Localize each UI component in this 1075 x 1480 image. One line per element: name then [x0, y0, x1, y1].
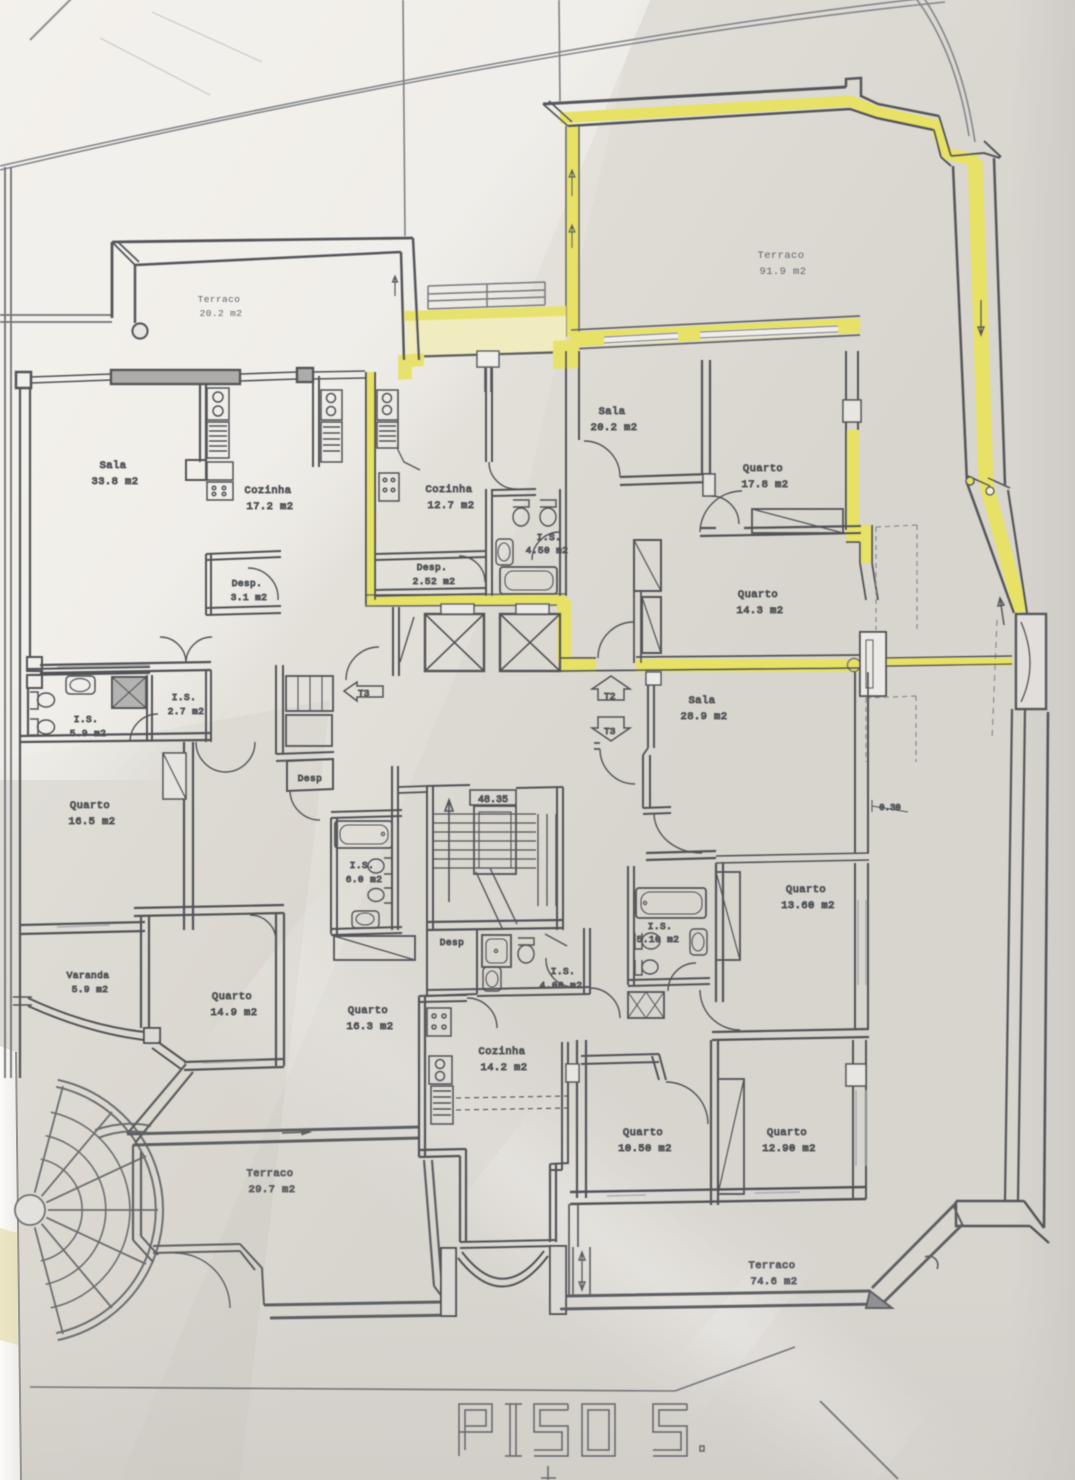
svg-text:10.50 m2: 10.50 m2: [618, 1143, 672, 1155]
svg-text:I.S.: I.S.: [648, 921, 672, 932]
svg-text:Terraco: Terraco: [198, 294, 241, 305]
svg-text:Desp.: Desp.: [417, 562, 448, 573]
svg-text:17.8 m2: 17.8 m2: [742, 479, 789, 491]
svg-text:2.52 m2: 2.52 m2: [413, 576, 456, 587]
svg-text:2.7 m2: 2.7 m2: [168, 706, 205, 717]
svg-text:T3: T3: [604, 726, 616, 737]
svg-text:74.6 m2: 74.6 m2: [751, 1276, 798, 1288]
svg-text:16.3 m2: 16.3 m2: [347, 1021, 394, 1033]
svg-text:Desp: Desp: [440, 937, 464, 948]
svg-text:Quarto: Quarto: [70, 800, 110, 812]
svg-text:Quarto: Quarto: [212, 991, 252, 1003]
svg-text:Cozinha: Cozinha: [426, 484, 473, 496]
svg-text:91.9 m2: 91.9 m2: [760, 266, 807, 278]
svg-text:Sala: Sala: [599, 406, 626, 418]
svg-text:13.60 m2: 13.60 m2: [781, 900, 835, 912]
svg-text:Quarto: Quarto: [743, 463, 783, 475]
svg-text:29.7 m2: 29.7 m2: [249, 1184, 296, 1196]
svg-text:T2: T2: [604, 691, 616, 702]
svg-text:17.2 m2: 17.2 m2: [247, 501, 294, 513]
svg-text:12.90 m2: 12.90 m2: [762, 1143, 816, 1155]
svg-text:Quarto: Quarto: [786, 884, 826, 896]
svg-text:20.2 m2: 20.2 m2: [591, 422, 638, 434]
svg-text:Sala: Sala: [100, 460, 127, 472]
svg-text:4.00 m2: 4.00 m2: [540, 980, 583, 991]
svg-text:Cozinha: Cozinha: [245, 485, 292, 497]
svg-text:Terraco: Terraco: [749, 1260, 796, 1272]
svg-text:Desp: Desp: [298, 773, 322, 784]
svg-text:5.9 m2: 5.9 m2: [72, 984, 109, 995]
svg-text:3.1 m2: 3.1 m2: [231, 592, 268, 603]
svg-text:20.2 m2: 20.2 m2: [200, 308, 243, 319]
svg-text:14.3 m2: 14.3 m2: [737, 605, 784, 617]
svg-text:14.2 m2: 14.2 m2: [481, 1062, 528, 1074]
svg-text:I.S.: I.S.: [172, 692, 196, 703]
svg-text:14.9 m2: 14.9 m2: [211, 1007, 258, 1019]
svg-text:T3: T3: [358, 688, 370, 699]
svg-text:Cozinha: Cozinha: [479, 1046, 526, 1058]
svg-text:28.9 m2: 28.9 m2: [681, 711, 728, 723]
svg-text:5.9 m2: 5.9 m2: [70, 728, 107, 739]
svg-text:6.0 m2: 6.0 m2: [346, 874, 383, 885]
svg-text:Quarto: Quarto: [738, 589, 778, 601]
svg-text:48.35: 48.35: [478, 795, 508, 806]
svg-text:12.7 m2: 12.7 m2: [428, 500, 475, 512]
svg-text:16.5 m2: 16.5 m2: [69, 816, 116, 828]
svg-text:I.S.: I.S.: [74, 714, 98, 725]
svg-text:Quarto: Quarto: [623, 1127, 663, 1139]
svg-text:33.8 m2: 33.8 m2: [92, 476, 139, 488]
svg-text:Terraco: Terraco: [247, 1168, 294, 1180]
svg-text:Quarto: Quarto: [348, 1005, 388, 1017]
svg-text:Quarto: Quarto: [767, 1127, 807, 1139]
svg-text:I.S.: I.S.: [551, 966, 575, 977]
svg-text:Sala: Sala: [689, 695, 716, 707]
svg-text:Terraco: Terraco: [758, 250, 805, 262]
svg-text:Desp.: Desp.: [232, 578, 263, 589]
svg-text:Varanda: Varanda: [67, 970, 110, 981]
